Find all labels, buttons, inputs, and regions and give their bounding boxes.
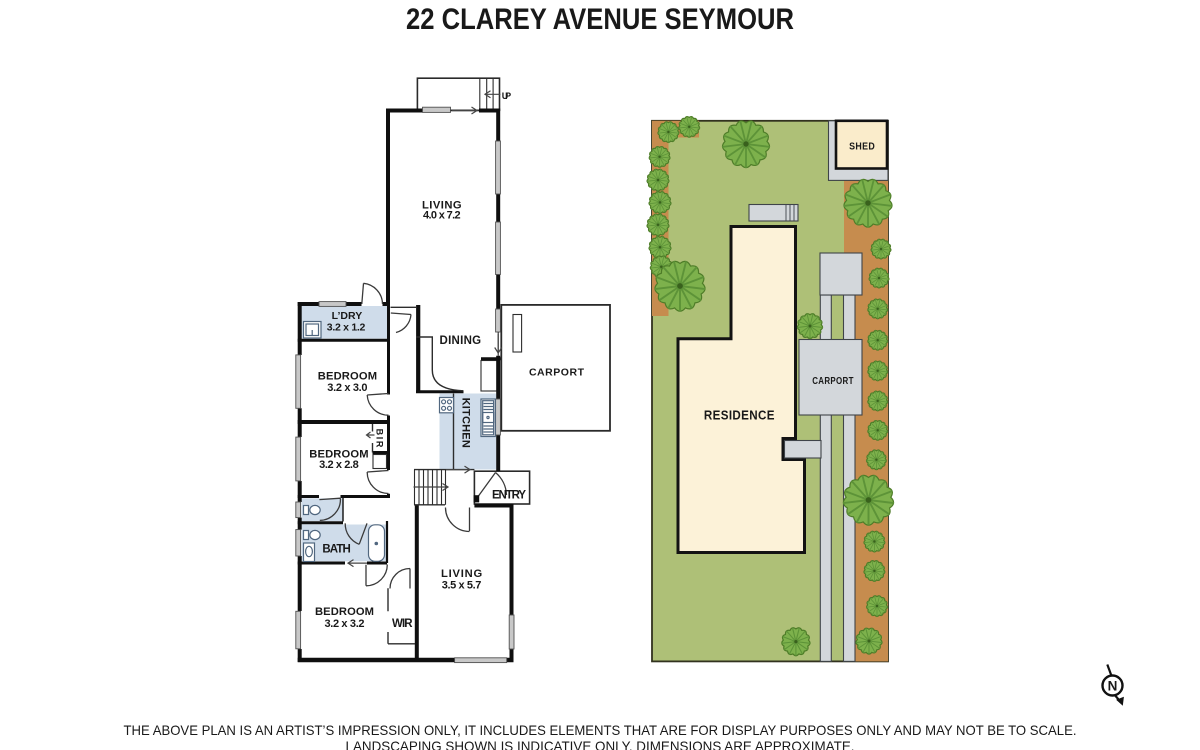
svg-text:CARPORT: CARPORT	[812, 376, 854, 387]
svg-text:KITCHEN: KITCHEN	[459, 398, 471, 449]
svg-text:CARPORT: CARPORT	[529, 366, 585, 378]
svg-text:3.2 x 1.2: 3.2 x 1.2	[327, 322, 366, 334]
svg-text:BEDROOM: BEDROOM	[318, 371, 378, 383]
svg-text:BIR: BIR	[375, 429, 385, 448]
svg-text:RESIDENCE: RESIDENCE	[704, 408, 775, 423]
svg-text:N: N	[1108, 678, 1118, 693]
svg-text:22 CLAREY AVENUE SEYMOUR: 22 CLAREY AVENUE SEYMOUR	[406, 3, 794, 36]
svg-text:DINING: DINING	[440, 335, 482, 347]
svg-text:ENTRY: ENTRY	[492, 490, 527, 502]
svg-text:WIR: WIR	[392, 618, 413, 630]
svg-text:THE ABOVE PLAN IS AN ARTIST’S: THE ABOVE PLAN IS AN ARTIST’S IMPRESSION…	[124, 722, 1077, 738]
svg-text:SHED: SHED	[849, 142, 875, 153]
svg-text:LANDSCAPING SHOWN IS INDICATIV: LANDSCAPING SHOWN IS INDICATIVE ONLY, DI…	[346, 738, 855, 750]
svg-text:3.2 x 2.8: 3.2 x 2.8	[319, 459, 359, 471]
svg-text:4.0 x 7.2: 4.0 x 7.2	[423, 210, 461, 222]
svg-text:UP: UP	[502, 91, 512, 101]
svg-text:L’DRY: L’DRY	[332, 310, 363, 322]
svg-text:3.2 x 3.2: 3.2 x 3.2	[324, 618, 365, 630]
svg-text:3.5 x 5.7: 3.5 x 5.7	[442, 579, 482, 591]
svg-text:3.2 x 3.0: 3.2 x 3.0	[327, 382, 368, 394]
svg-text:BEDROOM: BEDROOM	[315, 606, 374, 618]
svg-text:LIVING: LIVING	[441, 568, 483, 580]
svg-text:BATH: BATH	[322, 543, 351, 555]
